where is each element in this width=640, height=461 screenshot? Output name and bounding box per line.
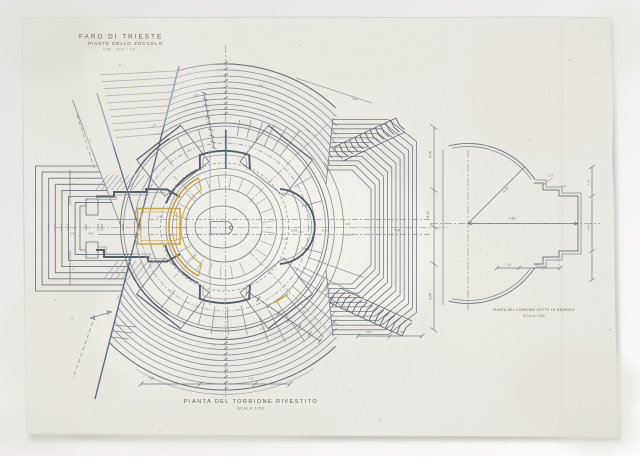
svg-text:2.96: 2.96 (587, 224, 591, 230)
svg-text:2.36: 2.36 (282, 237, 288, 241)
svg-text:0.63: 0.63 (345, 222, 351, 226)
svg-text:2.34: 2.34 (291, 229, 297, 233)
svg-text:1.64: 1.64 (534, 263, 540, 267)
svg-text:11.47: 11.47 (345, 233, 353, 237)
svg-text:1.08: 1.08 (157, 215, 163, 219)
svg-text:1.25: 1.25 (561, 184, 567, 188)
svg-text:0.90: 0.90 (352, 97, 358, 101)
svg-text:1.18: 1.18 (505, 263, 511, 267)
svg-text:4.04: 4.04 (88, 232, 94, 236)
svg-text:7.60: 7.60 (148, 377, 154, 381)
svg-text:7.42: 7.42 (509, 217, 516, 221)
svg-text:FARO DI TRIESTE: FARO DI TRIESTE (79, 34, 163, 41)
svg-text:0.90: 0.90 (366, 330, 372, 334)
svg-text:PIANTE DELLO ZOCCOLO: PIANTE DELLO ZOCCOLO (88, 41, 163, 46)
svg-text:7.34: 7.34 (394, 229, 401, 233)
svg-text:0.63: 0.63 (322, 229, 328, 233)
svg-text:2.47: 2.47 (70, 232, 76, 236)
svg-text:1.25: 1.25 (587, 179, 591, 185)
svg-text:PIANTA DEL TORRIONE RIVESTITO: PIANTA DEL TORRIONE RIVESTITO (184, 399, 318, 405)
svg-text:1.23: 1.23 (548, 174, 554, 178)
svg-text:SCALA 1/50: SCALA 1/50 (237, 407, 265, 411)
svg-text:PIANTA DEL CORDONE SOTTO LE ME: PIANTA DEL CORDONE SOTTO LE MENSOLE (493, 308, 576, 312)
svg-text:4.74: 4.74 (429, 293, 433, 300)
svg-text:1.36: 1.36 (166, 233, 172, 237)
svg-text:0.60: 0.60 (398, 330, 404, 334)
svg-text:1.10: 1.10 (298, 230, 304, 234)
svg-text:SCALA 1/50: SCALA 1/50 (523, 314, 545, 318)
svg-text:1.25: 1.25 (248, 377, 254, 381)
svg-text:41.44: 41.44 (426, 211, 430, 219)
svg-text:4.74: 4.74 (429, 151, 433, 158)
